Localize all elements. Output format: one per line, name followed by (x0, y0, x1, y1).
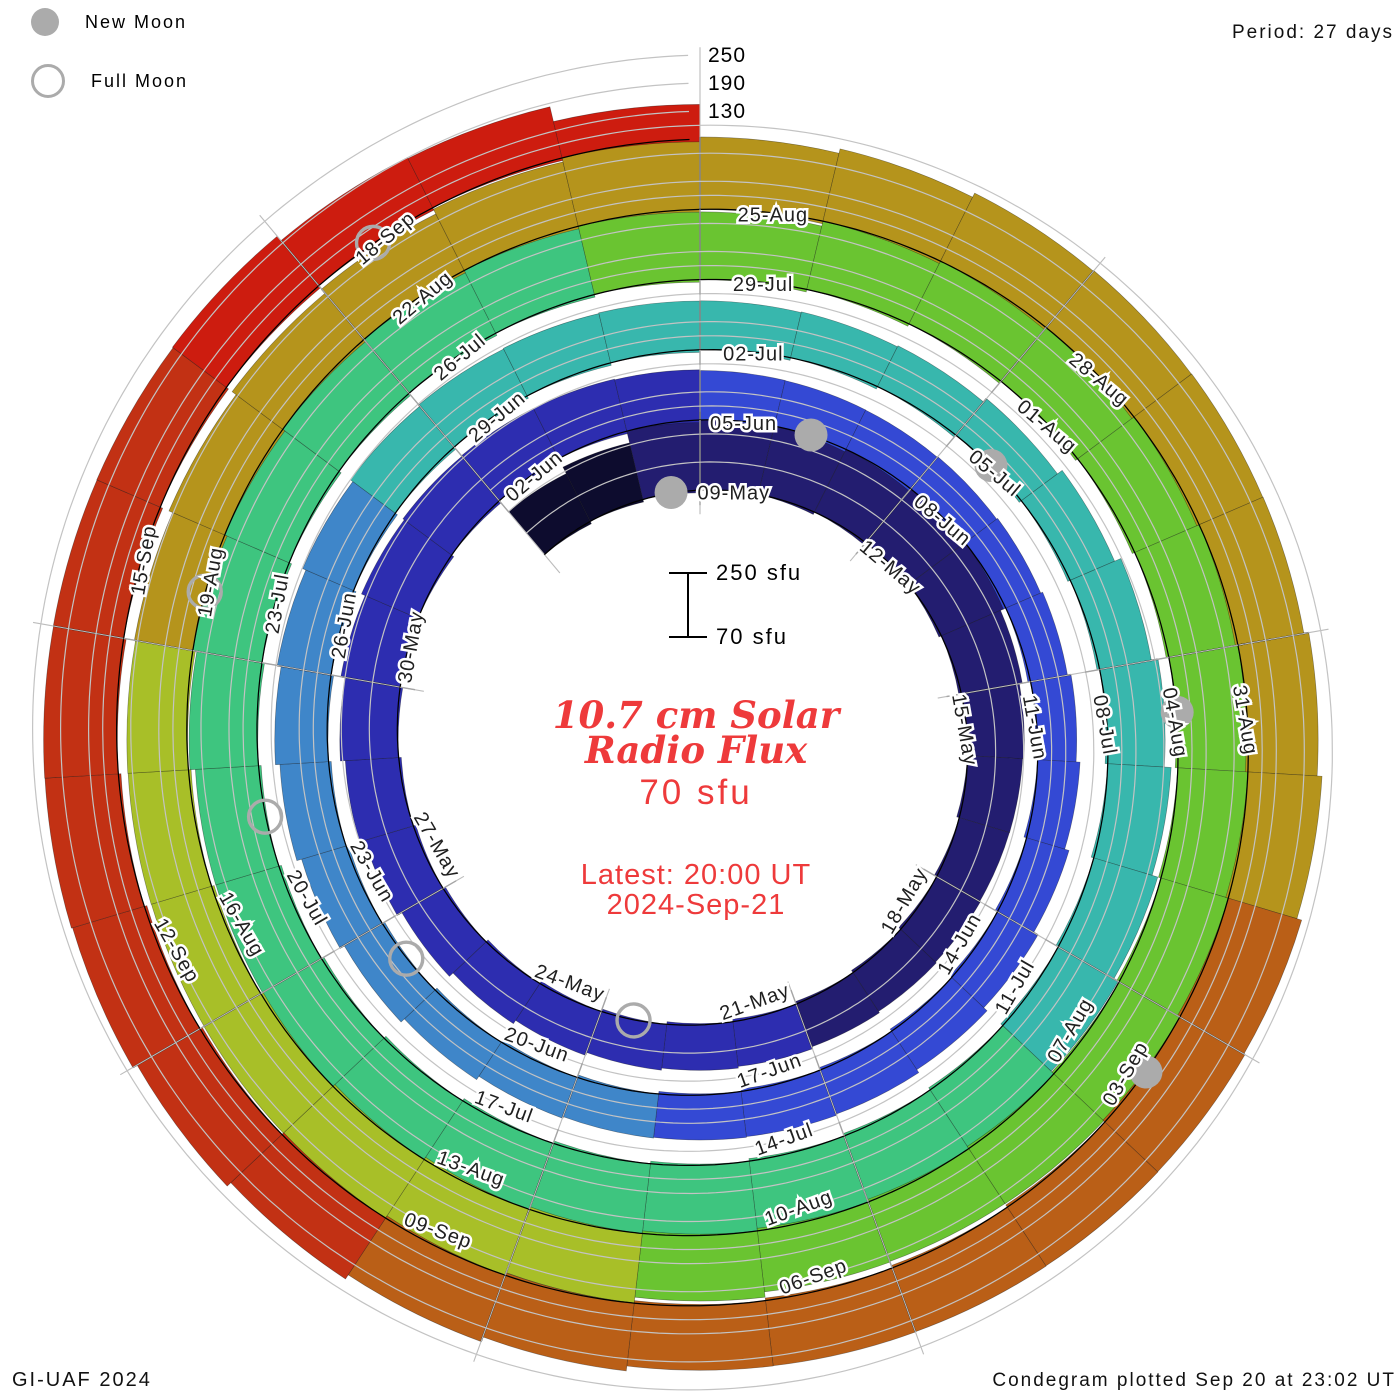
chart-title-line2: Radio Flux (0, 733, 1392, 768)
chart-title: 10.7 cm Solar Radio Flux (0, 698, 1392, 768)
baseline-tick (991, 381, 1001, 392)
date-label: 02-Jul (723, 344, 783, 366)
baseline-tick (839, 1122, 844, 1136)
baseline-tick (946, 435, 956, 446)
baseline-tick (499, 501, 509, 512)
legend-new-moon: New Moon (31, 8, 187, 36)
date-label: 25-Aug (738, 204, 809, 226)
flux-bar (599, 301, 700, 363)
new-moon-marker (655, 476, 688, 509)
condegram-page: 09-May12-May15-May18-May21-May24-May27-M… (0, 0, 1400, 1400)
latest-time: Latest: 20:00 UT (0, 860, 1392, 890)
legend-full-moon: Full Moon (31, 64, 188, 98)
flux-bar (654, 1091, 747, 1140)
flux-bar (662, 1022, 739, 1071)
center-flux-value: 70 sfu (0, 773, 1392, 813)
baseline-tick (1085, 670, 1100, 673)
baseline-tick (454, 447, 464, 458)
credit-left: GI-UAF 2024 (12, 1369, 152, 1392)
latest-reading: Latest: 20:00 UT 2024-Sep-21 (0, 860, 1392, 920)
scale-bar-bottom-label: 70 sfu (716, 624, 788, 649)
baseline-tick (409, 393, 419, 404)
flux-bar (615, 370, 700, 431)
credit-right: Condegram plotted Sep 20 at 23:02 UT (992, 1370, 1396, 1392)
flux-bar (627, 1301, 773, 1371)
baseline-tick (1045, 939, 1058, 947)
new-moon-marker (795, 418, 828, 451)
date-label: 09-May (697, 483, 770, 505)
baseline-tick (815, 1056, 820, 1070)
baseline-tick (322, 951, 335, 959)
full-moon-label: Full Moon (91, 71, 188, 92)
flux-axis-label: 250 (708, 44, 746, 67)
period-label: Period: 27 days (1232, 22, 1394, 44)
date-label: 05-Jun (710, 413, 777, 435)
full-moon-icon (31, 64, 65, 98)
flux-axis-label: 190 (708, 72, 746, 95)
baseline-tick (1154, 657, 1169, 660)
new-moon-icon (31, 8, 59, 36)
flux-axis-label: 130 (708, 100, 746, 123)
date-label: 29-Jul (733, 274, 793, 296)
new-moon-label: New Moon (85, 12, 187, 33)
latest-date: 2024-Sep-21 (0, 890, 1392, 920)
scale-bar-top-label: 250 sfu (716, 560, 802, 585)
flux-bar (643, 1161, 758, 1234)
baseline-tick (791, 990, 796, 1004)
flux-bar (791, 312, 898, 389)
